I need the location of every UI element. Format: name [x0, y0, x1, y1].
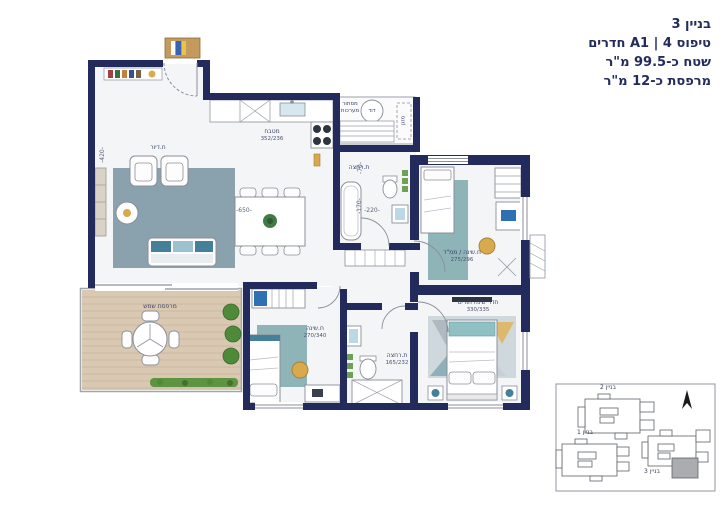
ac-ledge [530, 235, 545, 278]
bedroom-label: ח.שינה 270/340 [295, 325, 335, 340]
dim-220: -220- [357, 207, 387, 215]
kitchen-dim: 352/236 [252, 136, 292, 143]
corridor-closet [345, 250, 405, 266]
living-room-label: ח.דיור [138, 144, 178, 152]
balcony-area-line: מרפסת כ-12 מ"ר [588, 73, 711, 92]
bathroom-bottom-label: ת.רחצה 165/232 [376, 352, 418, 367]
bathroom-bottom-dim: 165/232 [376, 360, 418, 367]
safe-room-dim: 275/296 [430, 257, 494, 264]
service-label: מסתור מערכות [337, 101, 363, 115]
key-plan-building-2-label: בניין 2 [588, 384, 628, 391]
sofa [148, 238, 216, 266]
area-line: שטח כ-99.5 מ"ר [588, 54, 711, 73]
ac-label: מזגן [400, 112, 407, 130]
floor-plan-page: בניין 3 טיפוס A1 | 4 חדרים שטח כ-99.5 מ"… [0, 0, 725, 508]
wall-shelf [104, 68, 162, 80]
dining-set [235, 188, 305, 255]
building-title: בניין 3 [588, 16, 711, 35]
bedroom-dim: 270/340 [295, 333, 335, 340]
title-block: בניין 3 טיפוס A1 | 4 חדרים שטח כ-99.5 מ"… [588, 16, 711, 91]
kitchen-label: מטבח 352/236 [252, 128, 292, 143]
balcony-label: מרפסת שמש [130, 303, 190, 311]
bookcase [95, 168, 106, 236]
master-bedroom-dim: 330/335 [438, 307, 518, 314]
coffee-table [116, 202, 138, 224]
key-plan-building-1-label: בניין 1 [565, 429, 605, 436]
dim-650: -650- [229, 207, 259, 215]
dim-170: -170- [356, 191, 364, 221]
dim-420: -420- [99, 140, 107, 170]
boiler-label: דוד [363, 108, 381, 115]
key-plan-building-3-label: בניין 3 [632, 468, 672, 475]
dim-70: -70- [357, 153, 365, 183]
highlighted-unit [672, 458, 698, 478]
master-bedroom-label: חדר שינה הורים 330/335 [438, 299, 518, 314]
safe-room-label: ח.שינה / ממ"ד 275/296 [430, 249, 494, 264]
apartment-type: טיפוס A1 | 4 חדרים [588, 35, 711, 54]
